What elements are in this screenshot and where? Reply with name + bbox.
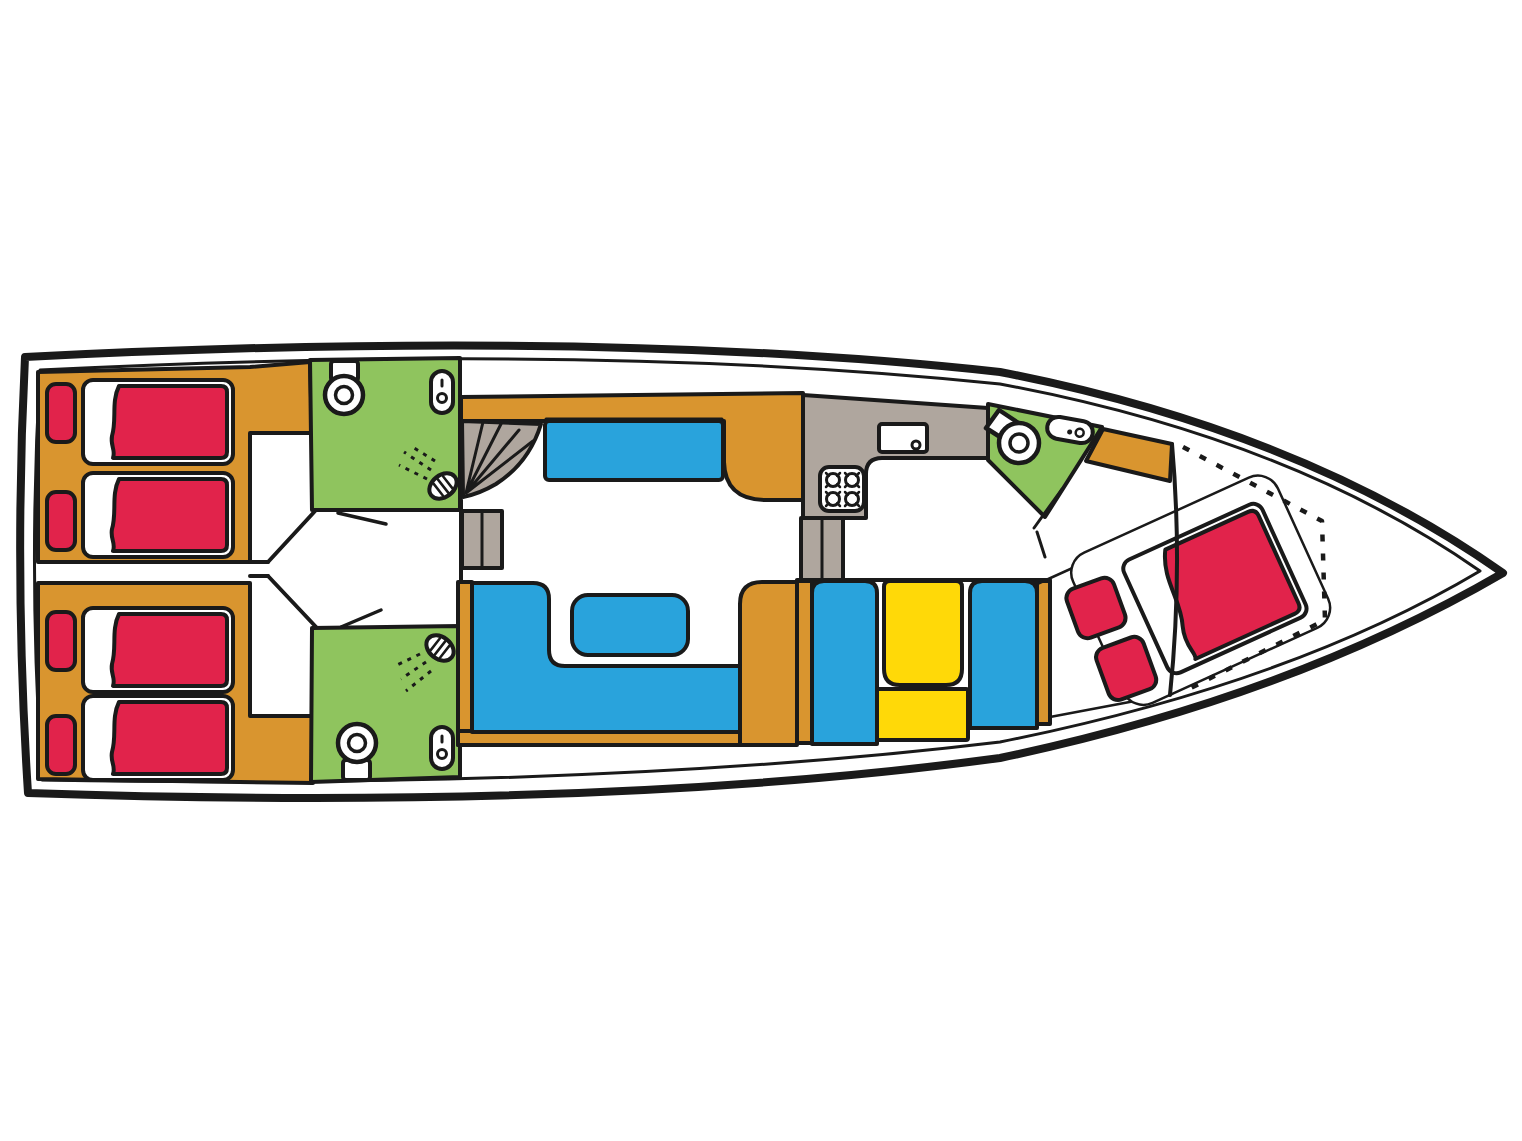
stove-icon	[820, 467, 864, 511]
single-bed	[83, 608, 233, 692]
toilet-bowl	[338, 724, 376, 762]
wood-trim	[458, 582, 472, 745]
wardrobe-cabinet	[462, 511, 502, 568]
single-bed	[83, 696, 233, 780]
dinette-bench-right	[970, 581, 1037, 728]
salon-sofa	[545, 421, 723, 480]
dinette	[797, 580, 1050, 744]
single-bed	[83, 473, 233, 557]
toilet-bowl	[325, 376, 363, 414]
floor-plan-canvas	[0, 0, 1522, 1141]
washbasin-icon	[431, 371, 453, 413]
washbasin-icon	[431, 727, 453, 769]
seat-cushion	[47, 492, 75, 550]
boat-floor-plan: Motor yacht interior floor plan (lower d…	[0, 0, 1522, 1141]
seat-cushion	[47, 384, 75, 442]
toilet-bowl	[999, 423, 1039, 463]
wood-trim	[797, 581, 812, 743]
galley-sink-icon	[879, 424, 927, 452]
toilet-icon	[325, 361, 363, 414]
wood-locker	[740, 582, 797, 745]
bathroom-starboard	[311, 626, 460, 782]
bathroom-port	[310, 358, 462, 510]
single-bed	[83, 380, 233, 464]
seat-cushion	[47, 612, 75, 670]
coffee-table	[572, 595, 688, 655]
seat-cushion	[47, 716, 75, 774]
dinette-floor	[877, 689, 968, 740]
toilet-icon	[338, 724, 376, 780]
galley-cabinet	[801, 518, 843, 580]
dinette-bench-left	[812, 581, 877, 744]
dinette-table	[884, 581, 962, 685]
wood-trim	[1037, 581, 1050, 724]
